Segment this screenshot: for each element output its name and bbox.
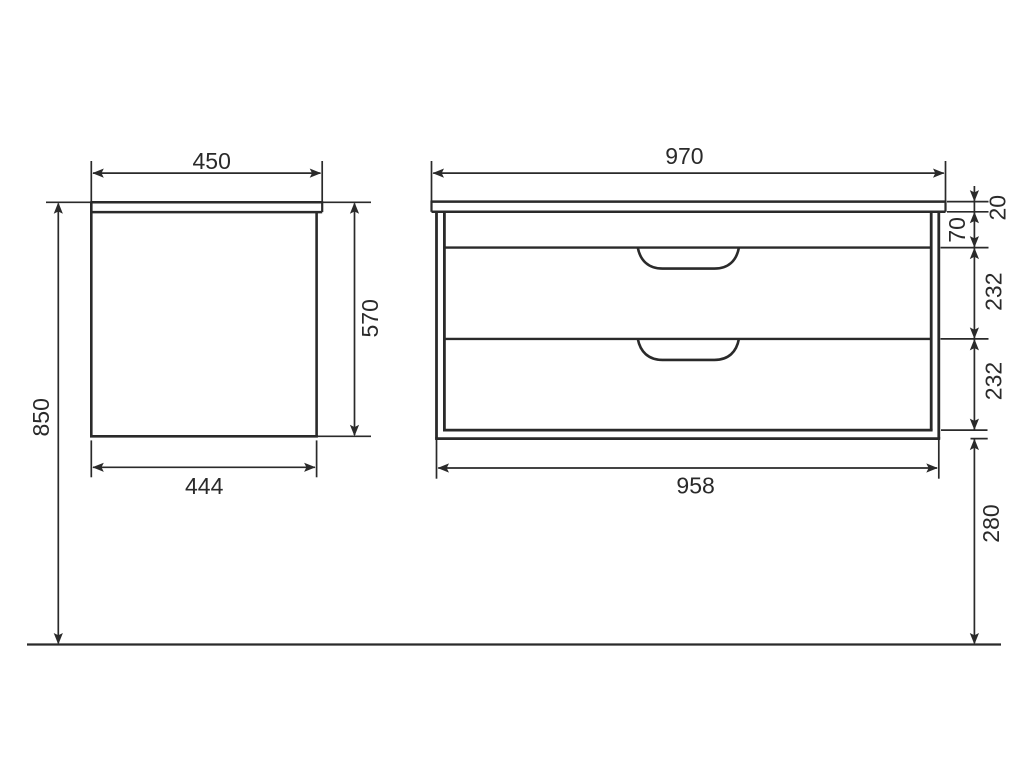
svg-text:970: 970 (665, 143, 703, 169)
svg-text:450: 450 (193, 148, 231, 174)
svg-text:20: 20 (985, 195, 1011, 221)
svg-text:70: 70 (944, 217, 970, 243)
svg-text:958: 958 (676, 473, 714, 499)
svg-text:444: 444 (185, 473, 224, 499)
svg-text:850: 850 (28, 398, 54, 436)
svg-text:232: 232 (981, 273, 1007, 311)
svg-text:570: 570 (357, 299, 383, 337)
svg-text:232: 232 (980, 362, 1006, 400)
svg-text:280: 280 (978, 504, 1004, 542)
